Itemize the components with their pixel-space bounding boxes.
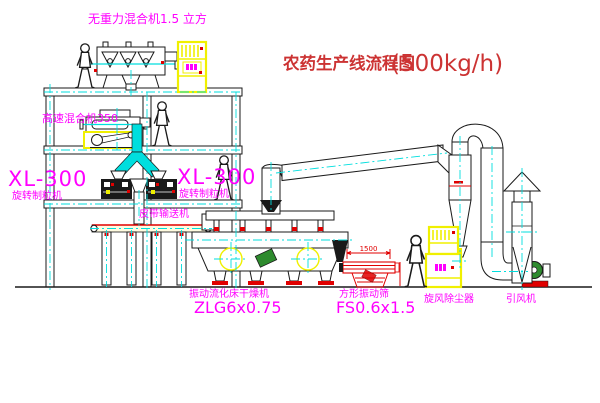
person-ground <box>405 236 427 287</box>
screen-width-dimension: 1500 <box>360 245 378 253</box>
dryer-exhaust-duct <box>260 145 443 214</box>
person-second-floor <box>152 102 171 146</box>
label-cyclone: 旋风除尘器 <box>424 292 474 305</box>
title-capacity: (500kg/h) <box>391 51 503 77</box>
label-granulator-left-name: 旋转制粒机 <box>12 189 62 202</box>
label-granulator-right-name: 旋转制粒机 <box>179 187 229 200</box>
label-screen-model: FS0.6x1.5 <box>336 298 415 317</box>
label-belt-conveyor: 皮带输送机 <box>139 207 189 220</box>
label-dryer-model: ZLG6x0.75 <box>194 298 282 317</box>
label-gravity-mixer: 无重力混合机1.5 立方 <box>88 11 207 26</box>
label-granulator-right-model: XL-300 <box>177 165 256 189</box>
label-fan: 引风机 <box>506 292 536 305</box>
control-cabinet-bottom <box>426 227 461 287</box>
diagram-title: 农药生产线流程图 (500kg/h) <box>282 51 503 77</box>
person-top-floor <box>75 44 94 88</box>
label-high-speed-mixer: 高速混合机350 <box>42 111 118 125</box>
process-flow-diagram: 1500 <box>0 0 600 403</box>
diagram-page: 1500 <box>0 0 600 403</box>
vibrating-screen: 1500 <box>332 240 400 287</box>
fluid-bed-dryer <box>192 211 348 285</box>
granulator-left <box>101 171 132 199</box>
label-granulator-left-model: XL-300 <box>8 167 87 191</box>
control-cabinet-top <box>178 42 206 92</box>
